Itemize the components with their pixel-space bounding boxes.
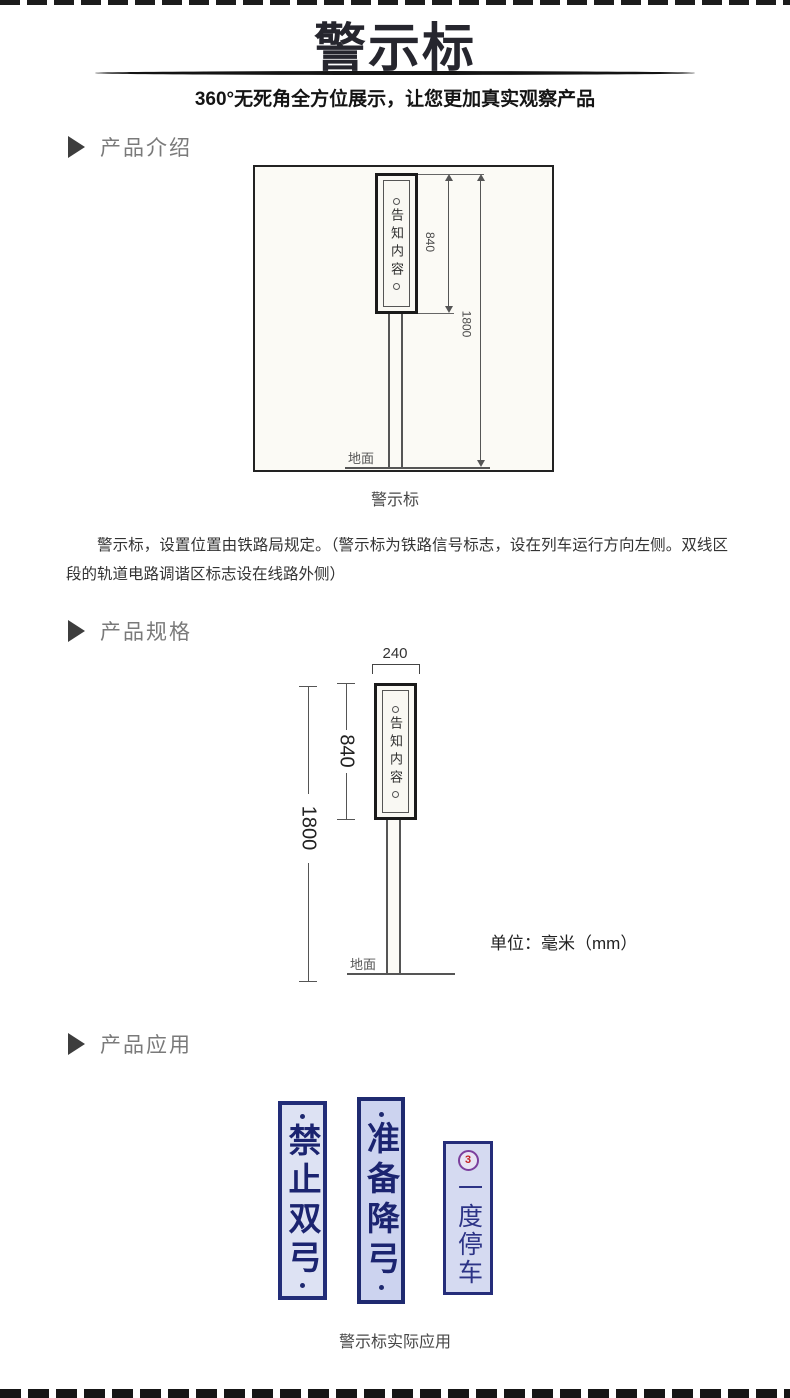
application-sign-zhunbei-jianggong: 准备降弓 — [357, 1097, 405, 1304]
dim-label-1800: 1800 — [297, 806, 320, 851]
section-header-intro: 产品介绍 — [68, 132, 192, 162]
dim-line-840 — [346, 683, 347, 730]
dim-line-1800 — [308, 863, 309, 981]
page-title: 警示标 — [0, 6, 790, 81]
arrow-up-icon — [477, 174, 485, 181]
intro-diagram: 告知内容 地面 840 1800 — [253, 165, 554, 472]
dim-label-240: 240 — [374, 645, 416, 662]
triangle-bullet-icon — [68, 620, 85, 642]
arrow-down-icon — [445, 306, 453, 313]
mounting-hole-icon — [379, 1285, 384, 1290]
top-dashed-border — [0, 0, 790, 5]
section-label: 产品规格 — [100, 616, 192, 646]
screw-hole-icon — [393, 198, 400, 205]
diagram-sign-board: 告知内容 — [375, 173, 418, 314]
triangle-bullet-icon — [68, 1033, 85, 1055]
bottom-dashed-border — [0, 1389, 790, 1398]
ground-label: 地面 — [348, 448, 374, 467]
section-label: 产品应用 — [100, 1029, 192, 1059]
dim-label-840: 840 — [335, 734, 358, 767]
screw-hole-icon — [392, 706, 399, 713]
application-sign-yidu-tingche: 3 一度停车 — [443, 1141, 493, 1295]
arrow-up-icon — [445, 174, 453, 181]
section-label: 产品介绍 — [100, 132, 192, 162]
dim-line-840 — [448, 177, 449, 310]
product-detail-page: 警示标 360°无死角全方位展示，让您更加真实观察产品 产品介绍 告知内容 地面… — [0, 0, 790, 1398]
sign-board-text: 告知内容 — [389, 716, 402, 788]
section-header-application: 产品应用 — [68, 1029, 192, 1059]
circled-number-icon: 3 — [458, 1150, 479, 1171]
screw-hole-icon — [393, 283, 400, 290]
sign-board-inner-frame: 告知内容 — [383, 180, 410, 307]
sign-text: 一度停车 — [456, 1175, 481, 1287]
section-header-spec: 产品规格 — [68, 616, 192, 646]
mounting-hole-icon — [379, 1112, 384, 1117]
sign-text: 禁止双弓 — [286, 1123, 319, 1279]
dim-line-1800 — [308, 686, 309, 794]
dim-label-840: 840 — [423, 232, 437, 252]
dim-line-1800 — [480, 177, 481, 464]
dim-tick — [299, 981, 317, 982]
intro-paragraph: 警示标，设置位置由铁路局规定。（警示标为铁路信号标志，设在列车运行方向左侧。双线… — [66, 531, 728, 589]
dim-line-840 — [346, 773, 347, 819]
screw-hole-icon — [392, 791, 399, 798]
diagram-sign-board: 告知内容 — [374, 683, 417, 820]
dim-bracket-240 — [372, 664, 420, 674]
ground-line — [347, 973, 455, 975]
dim-label-1800: 1800 — [459, 311, 473, 338]
arrow-down-icon — [477, 460, 485, 467]
application-caption: 警示标实际应用 — [0, 1328, 790, 1352]
ground-label: 地面 — [350, 954, 376, 973]
application-sign-jinzhi-shuanggong: 禁止双弓 — [278, 1101, 327, 1300]
triangle-bullet-icon — [68, 136, 85, 158]
sign-board-inner-frame: 告知内容 — [382, 690, 409, 813]
ground-line — [345, 467, 490, 469]
diagram-caption: 警示标 — [0, 486, 790, 510]
title-divider — [95, 71, 695, 75]
spec-diagram: 240 告知内容 地面 840 1800 单位：毫米（mm） — [230, 645, 670, 995]
unit-note: 单位：毫米（mm） — [490, 929, 637, 954]
extension-line — [418, 313, 454, 314]
sign-board-text: 告知内容 — [390, 208, 403, 280]
dim-tick — [337, 819, 355, 820]
page-subtitle: 360°无死角全方位展示，让您更加真实观察产品 — [0, 84, 790, 111]
mounting-hole-icon — [300, 1114, 305, 1119]
diagram-pole — [388, 314, 403, 468]
mounting-hole-icon — [300, 1283, 305, 1288]
diagram-pole — [386, 820, 401, 973]
sign-text: 准备降弓 — [365, 1121, 398, 1281]
